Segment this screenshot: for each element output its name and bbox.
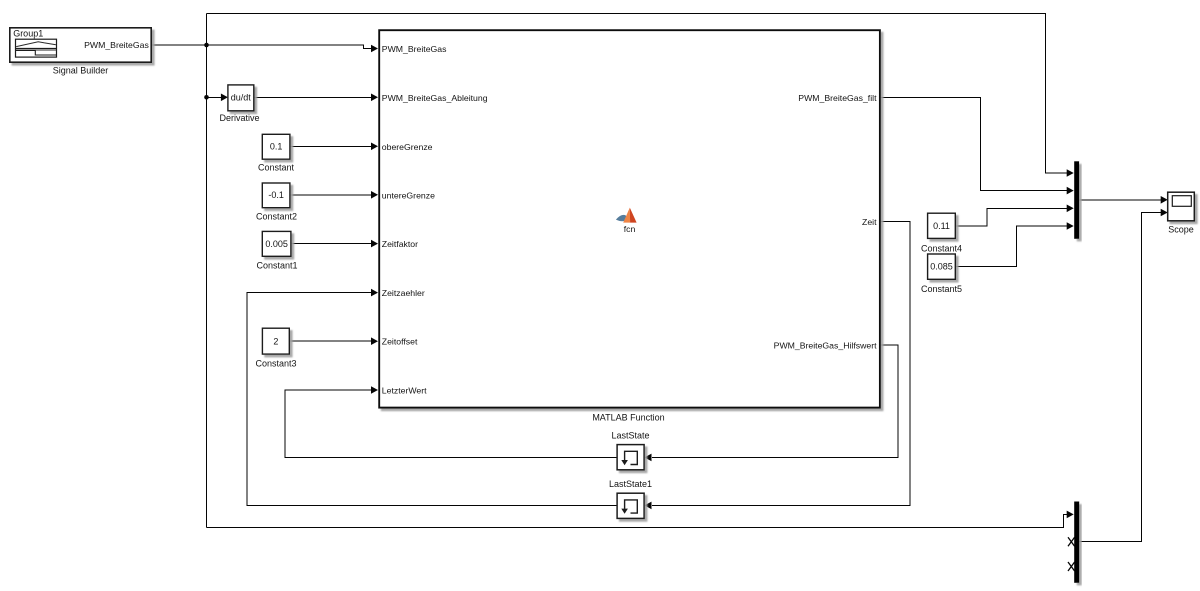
svg-text:du/dt: du/dt [231,93,252,103]
svg-text:untereGrenze: untereGrenze [382,190,435,200]
svg-text:obereGrenze: obereGrenze [382,142,433,152]
svg-text:MATLAB Function: MATLAB Function [592,413,664,423]
svg-text:PWM_BreiteGas_Ableitung: PWM_BreiteGas_Ableitung [382,93,488,103]
svg-text:Derivative: Derivative [219,113,259,123]
svg-text:Constant: Constant [258,163,295,173]
svg-text:2: 2 [273,336,278,346]
svg-text:Constant5: Constant5 [921,284,962,294]
svg-text:Signal Builder: Signal Builder [53,65,109,75]
svg-text:Constant2: Constant2 [256,212,297,222]
svg-text:Zeitoffset: Zeitoffset [382,337,418,347]
svg-text:0.11: 0.11 [933,221,950,231]
svg-text:PWM_BreiteGas_filt: PWM_BreiteGas_filt [798,93,877,103]
svg-text:-0.1: -0.1 [268,190,284,200]
svg-text:PWM_BreiteGas_Hilfswert: PWM_BreiteGas_Hilfswert [774,341,877,351]
svg-text:Zeitzaehler: Zeitzaehler [382,288,425,298]
svg-text:Scope: Scope [1168,225,1194,235]
svg-text:Constant1: Constant1 [256,260,297,270]
svg-text:LastState1: LastState1 [609,479,652,489]
svg-text:Zeit: Zeit [862,217,877,227]
svg-text:Constant3: Constant3 [255,359,296,369]
svg-text:Zeitfaktor: Zeitfaktor [382,239,418,249]
svg-text:0.1: 0.1 [270,142,283,152]
svg-text:PWM_BreiteGas: PWM_BreiteGas [382,44,447,54]
svg-text:0.005: 0.005 [265,239,288,249]
svg-text:PWM_BreiteGas: PWM_BreiteGas [84,40,149,50]
svg-text:0.085: 0.085 [930,262,953,272]
svg-text:Constant4: Constant4 [921,243,962,253]
svg-text:fcn: fcn [624,224,636,234]
svg-text:LastState: LastState [611,430,649,440]
svg-text:LetzterWert: LetzterWert [382,386,427,396]
svg-text:Group1: Group1 [13,28,43,38]
